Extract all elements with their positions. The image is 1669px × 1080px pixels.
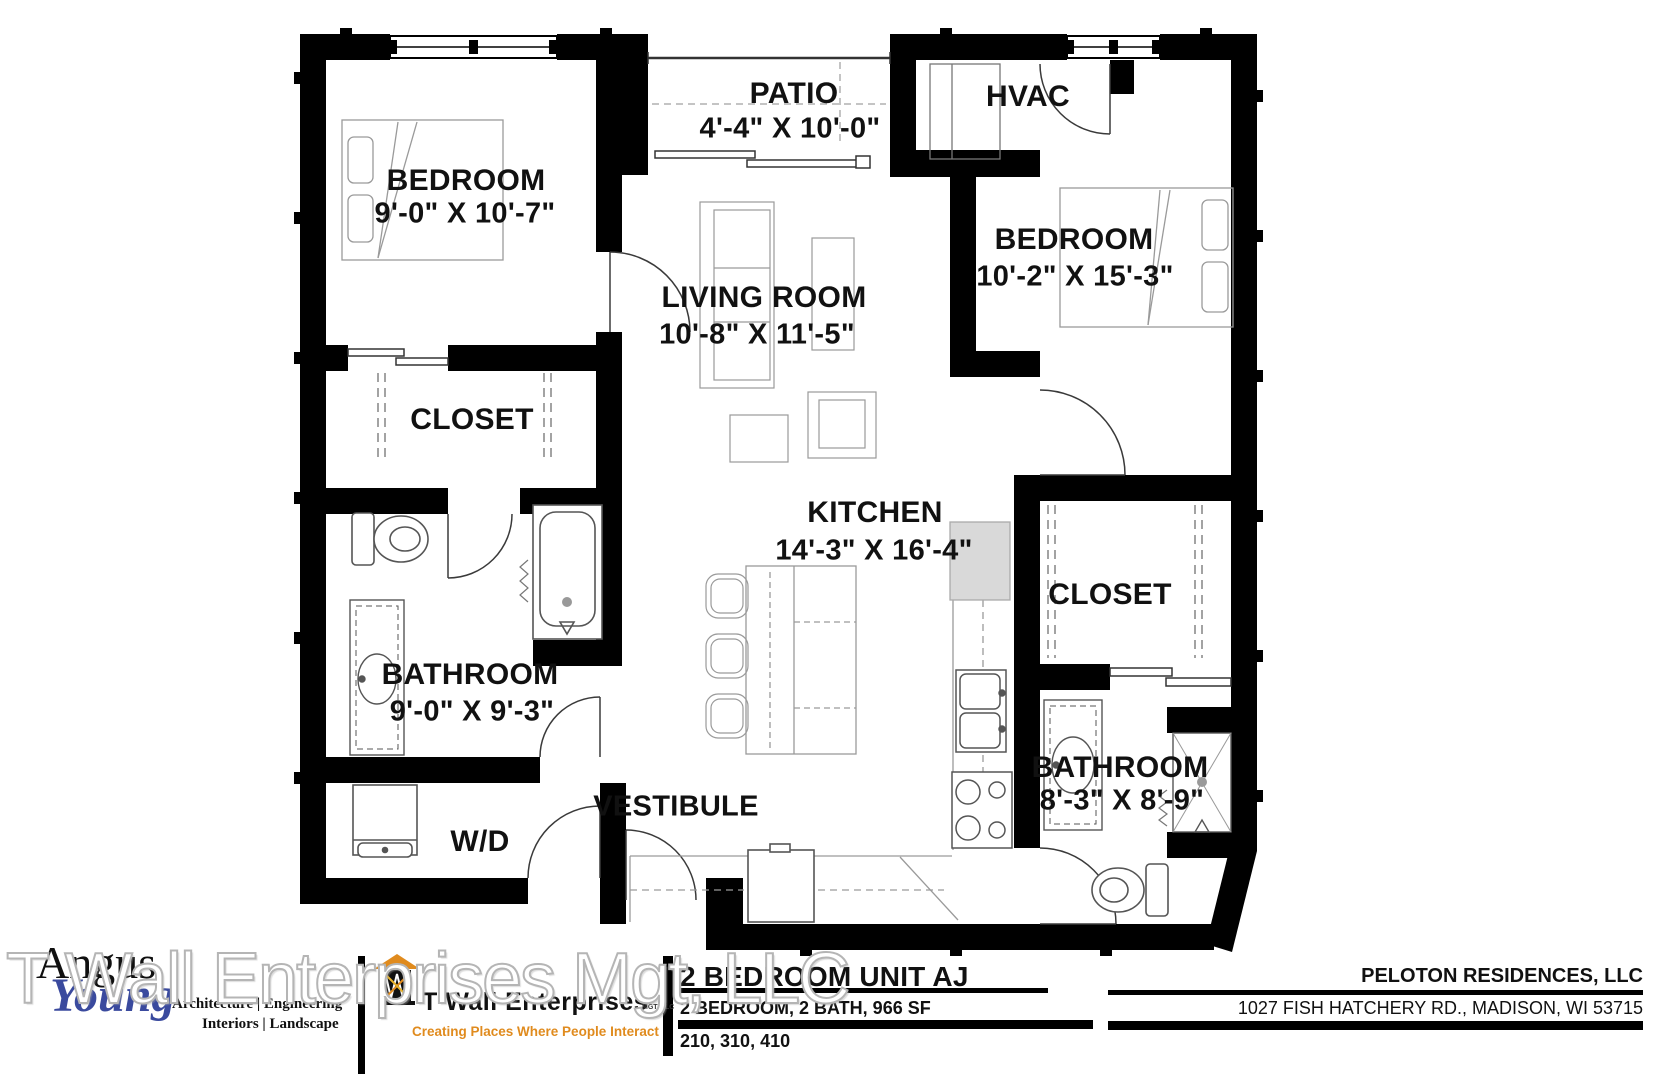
label-hvac: HVAC: [986, 80, 1070, 114]
label-patio: PATIO: [750, 77, 839, 111]
label-kitchen-dims: 14'-3" X 16'-4": [775, 535, 972, 568]
label-living-room: LIVING ROOM: [662, 281, 867, 315]
label-vestibule: VESTIBULE: [593, 791, 758, 824]
label-wd: W/D: [450, 825, 509, 859]
window-bedroom2: [1065, 36, 1161, 58]
architect-services-line2: Interiors | Landscape: [202, 1016, 339, 1033]
title-divider-1: [358, 956, 365, 1074]
door-wd-room: [528, 806, 600, 878]
floorplan-sheet: BEDROOM 9'-0" X 10'-7" PATIO 4'-4" X 10'…: [0, 0, 1669, 1080]
owner-name: PELOTON RESIDENCES, LLC: [1100, 965, 1643, 988]
twall-tower-logo-icon: [374, 954, 420, 1008]
developer-name: T Wall Enterprises: [422, 988, 648, 1017]
kitchen-island: [746, 566, 856, 754]
unit-specs: 2 BEDROOM, 2 BATH, 966 SF: [680, 998, 931, 1019]
label-bedroom1: BEDROOM: [387, 164, 546, 198]
owner-rule-1: [1108, 990, 1643, 995]
door-bedroom2: [1040, 390, 1125, 475]
label-closet1: CLOSET: [410, 403, 533, 437]
label-closet2: CLOSET: [1048, 578, 1171, 612]
owner-address: 1027 FISH HATCHERY RD., MADISON, WI 5371…: [1100, 998, 1643, 1019]
label-patio-dims: 4'-4" X 10'-0": [700, 113, 881, 146]
toilet-fixture-bath1: [352, 513, 428, 565]
bathtub-fixture: [533, 505, 602, 639]
patio-sliding-door: [655, 151, 870, 168]
developer-suffix: MGT, LLC: [642, 1004, 674, 1011]
label-bedroom2: BEDROOM: [995, 223, 1154, 257]
label-bedroom2-dims: 10'-2" X 15'-3": [976, 261, 1173, 294]
bed-bedroom2: [1060, 188, 1233, 327]
architect-services-line1: Architecture | Engineering: [172, 996, 342, 1013]
owner-rule-2: [1108, 1021, 1643, 1030]
kitchen-stove: [952, 772, 1012, 848]
island-stools: [706, 574, 748, 738]
label-kitchen: KITCHEN: [807, 496, 942, 530]
label-bathroom2-dims: 8'-3" X 8'-9": [1040, 785, 1204, 818]
label-bathroom2: BATHROOM: [1032, 751, 1209, 785]
door-closet1: [448, 514, 512, 578]
toilet-fixture-bath2: [1092, 864, 1168, 916]
kitchen-fridge: [748, 844, 814, 922]
developer-tagline: Creating Places Where People Interact: [412, 1024, 659, 1039]
washer-dryer-fixture: [353, 785, 417, 857]
label-living-room-dims: 10'-8" X 11'-5": [659, 319, 855, 352]
window-bedroom1: [388, 36, 558, 58]
unit-numbers: 210, 310, 410: [680, 1031, 790, 1052]
towel-bar-bath1: [520, 560, 528, 602]
patio-railing: [648, 52, 890, 64]
label-bedroom1-dims: 9'-0" X 10'-7": [375, 198, 556, 231]
architect-name-line2: Young: [50, 968, 175, 1023]
kitchen-sink: [956, 670, 1006, 752]
closet2-bypass-door: [1110, 668, 1231, 686]
label-bathroom1: BATHROOM: [382, 658, 559, 692]
label-bathroom1-dims: 9'-0" X 9'-3": [390, 696, 554, 729]
closet1-bypass-door: [348, 349, 448, 365]
unit-title: 2 BEDROOM UNIT AJ: [680, 961, 969, 993]
unit-rule-2: [678, 1020, 1093, 1029]
